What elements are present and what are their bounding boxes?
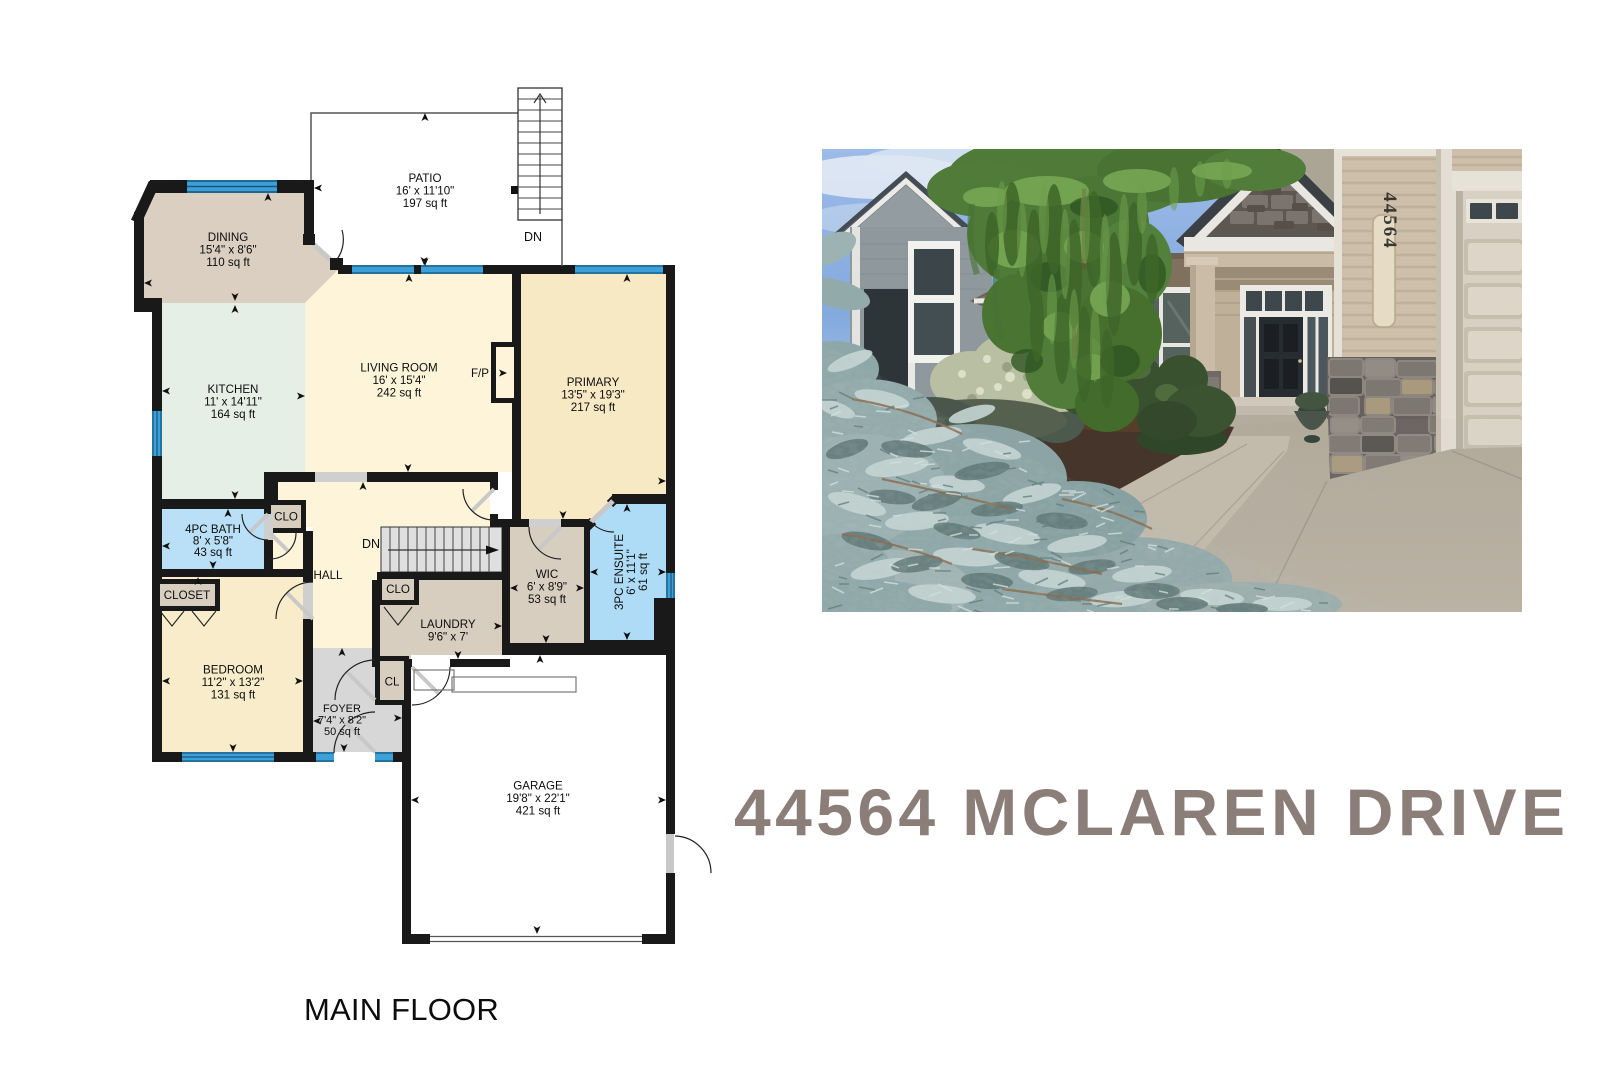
svg-text:43 sq ft: 43 sq ft [194,546,233,559]
svg-text:11'2" x 13'2": 11'2" x 13'2" [202,676,265,689]
svg-text:CLO: CLO [274,511,298,524]
svg-text:242 sq ft: 242 sq ft [377,387,422,400]
svg-text:9'6" x 7': 9'6" x 7' [428,631,468,644]
svg-text:LIVING ROOM: LIVING ROOM [360,362,437,375]
svg-text:CL: CL [385,676,400,689]
svg-text:61 sq ft: 61 sq ft [637,552,650,591]
svg-text:GARAGE: GARAGE [513,780,563,793]
svg-text:HALL: HALL [313,569,343,582]
svg-text:53 sq ft: 53 sq ft [528,593,567,606]
svg-text:131 sq ft: 131 sq ft [211,689,256,702]
svg-text:164 sq ft: 164 sq ft [211,408,256,421]
svg-text:16' x 11'10": 16' x 11'10" [396,185,455,198]
svg-text:197 sq ft: 197 sq ft [403,197,448,210]
svg-text:13'5" x 19'3": 13'5" x 19'3" [561,389,625,402]
svg-text:19'8" x 22'1": 19'8" x 22'1" [506,792,570,805]
svg-text:CLOSET: CLOSET [164,589,210,602]
svg-text:110 sq ft: 110 sq ft [206,256,250,269]
svg-text:DN: DN [362,537,380,551]
svg-text:DINING: DINING [208,231,249,244]
svg-text:BEDROOM: BEDROOM [203,664,263,677]
svg-text:421 sq ft: 421 sq ft [516,805,561,818]
svg-text:WIC: WIC [536,568,559,581]
svg-text:PRIMARY: PRIMARY [567,376,620,389]
svg-text:11' x 14'11": 11' x 14'11" [204,396,262,409]
svg-text:LAUNDRY: LAUNDRY [420,618,475,631]
svg-text:6' x 8'9": 6' x 8'9" [527,581,567,594]
svg-text:PATIO: PATIO [408,172,441,185]
svg-text:7'4" x 8'2": 7'4" x 8'2" [318,715,366,727]
svg-text:15'4" x 8'6": 15'4" x 8'6" [199,244,256,257]
svg-text:KITCHEN: KITCHEN [208,383,259,396]
svg-text:FOYER: FOYER [323,703,361,715]
svg-text:CLO: CLO [386,583,410,596]
svg-text:16' x 15'4": 16' x 15'4" [372,374,425,387]
svg-text:50 sq ft: 50 sq ft [324,726,360,738]
svg-text:DN: DN [524,230,542,244]
svg-text:F/P: F/P [471,367,489,380]
svg-text:44564: 44564 [1379,192,1400,250]
svg-text:217 sq ft: 217 sq ft [571,401,616,414]
